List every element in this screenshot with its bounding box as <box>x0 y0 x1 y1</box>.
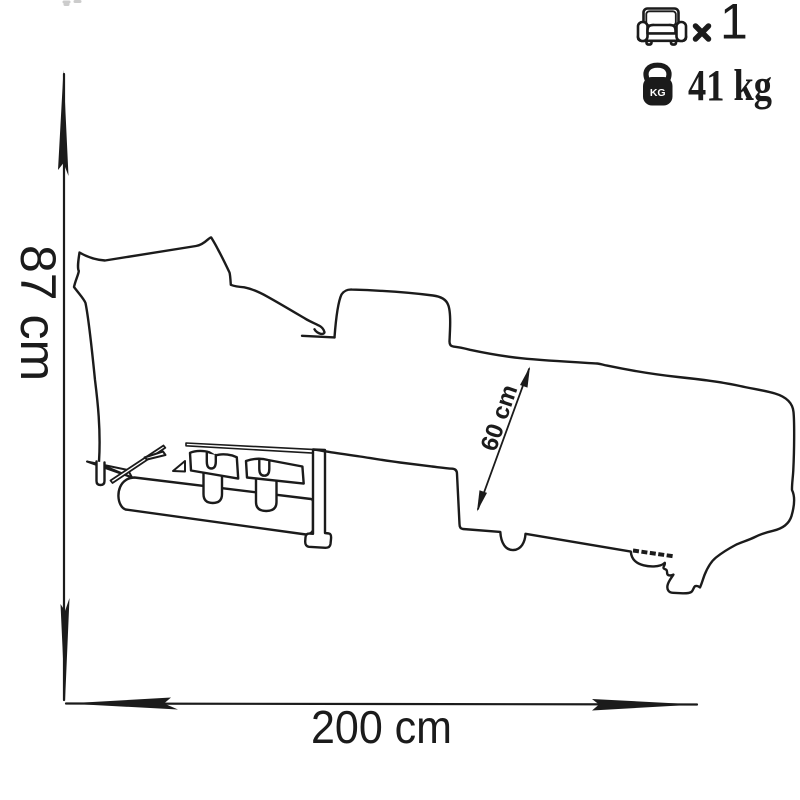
svg-text:87 cm: 87 cm <box>10 245 66 381</box>
svg-text:41 kg: 41 kg <box>688 61 772 110</box>
svg-text:1: 1 <box>720 0 748 50</box>
svg-text:60 cm: 60 cm <box>476 381 524 454</box>
svg-text:200 cm: 200 cm <box>311 701 452 753</box>
svg-text:KG: KG <box>650 87 666 99</box>
